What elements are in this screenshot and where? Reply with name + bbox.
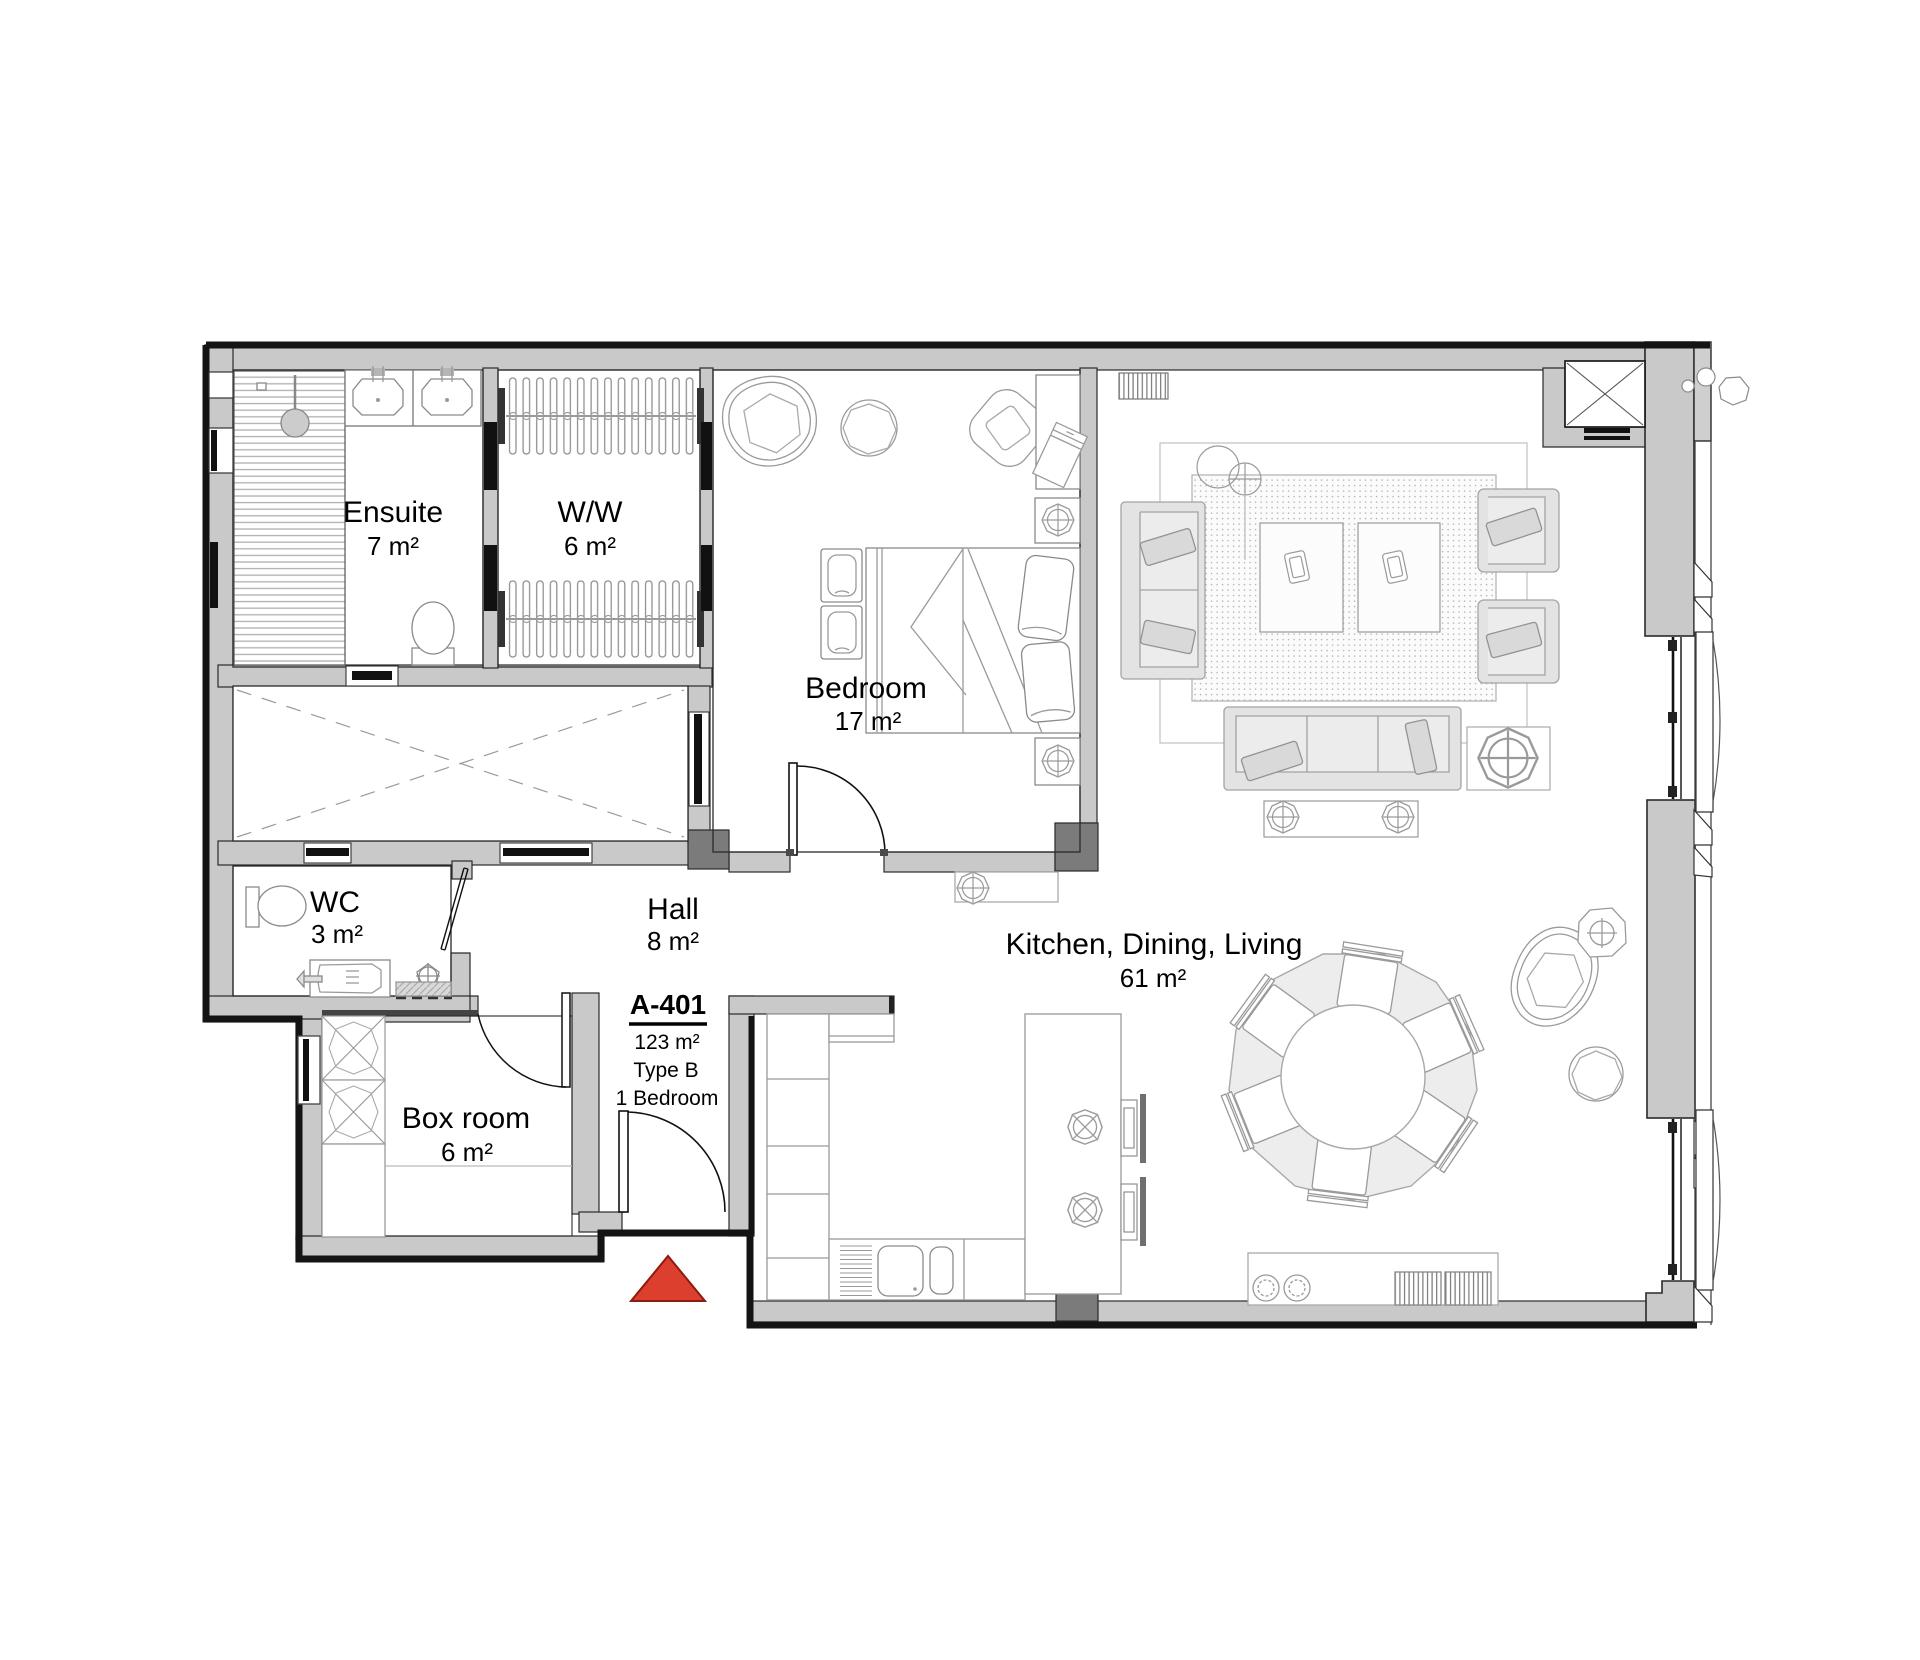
svg-text:W/W: W/W xyxy=(558,496,624,529)
svg-text:Box room: Box room xyxy=(402,1102,530,1135)
svg-text:123 m²: 123 m² xyxy=(634,1031,699,1054)
svg-text:A-401: A-401 xyxy=(630,989,706,1020)
svg-text:8 m²: 8 m² xyxy=(647,926,699,956)
svg-text:7 m²: 7 m² xyxy=(367,531,419,561)
svg-text:Hall: Hall xyxy=(647,893,699,926)
svg-text:Kitchen, Dining, Living: Kitchen, Dining, Living xyxy=(1006,928,1303,961)
svg-text:3 m²: 3 m² xyxy=(311,919,363,949)
svg-text:Ensuite: Ensuite xyxy=(343,496,443,529)
svg-text:17 m²: 17 m² xyxy=(835,706,902,736)
svg-text:6 m²: 6 m² xyxy=(441,1137,493,1167)
svg-text:6 m²: 6 m² xyxy=(564,531,616,561)
svg-text:Bedroom: Bedroom xyxy=(805,672,927,705)
svg-text:Type B: Type B xyxy=(633,1059,698,1082)
svg-text:61 m²: 61 m² xyxy=(1120,963,1187,993)
svg-text:1 Bedroom: 1 Bedroom xyxy=(616,1087,719,1110)
svg-text:WC: WC xyxy=(310,886,360,919)
